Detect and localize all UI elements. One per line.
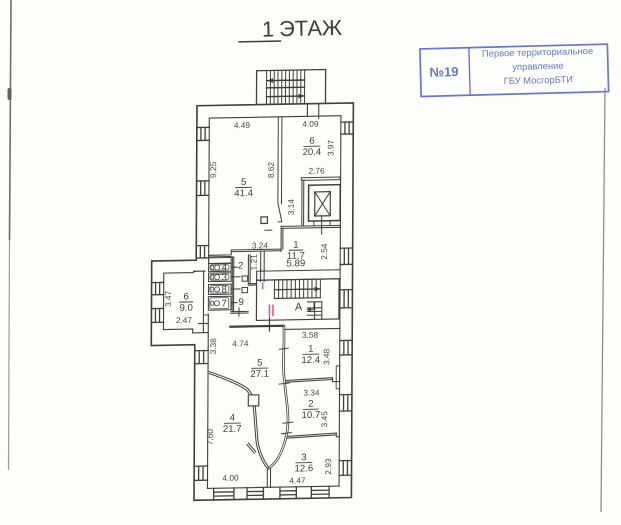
svg-text:9.0: 9.0: [179, 303, 192, 314]
svg-text:12.6: 12.6: [294, 463, 313, 474]
svg-text:4.49: 4.49: [234, 120, 251, 130]
svg-text:20.4: 20.4: [303, 147, 322, 158]
svg-text:9.25: 9.25: [208, 161, 218, 178]
svg-text:8: 8: [222, 284, 227, 295]
svg-text:5: 5: [257, 358, 262, 369]
svg-text:3.48: 3.48: [321, 348, 331, 365]
svg-text:управление: управление: [512, 60, 564, 72]
svg-text:3.97: 3.97: [326, 139, 336, 156]
svg-text:А: А: [295, 301, 303, 313]
svg-text:4.74: 4.74: [232, 338, 249, 348]
svg-text:5.89: 5.89: [287, 258, 306, 269]
svg-text:№19: №19: [429, 64, 458, 80]
svg-text:6: 6: [184, 291, 189, 302]
svg-text:3.38: 3.38: [208, 338, 218, 355]
svg-text:9: 9: [238, 297, 243, 308]
svg-text:1.21: 1.21: [249, 254, 259, 271]
svg-text:4: 4: [230, 413, 236, 424]
svg-text:Первое территориальное: Первое территориальное: [482, 45, 593, 59]
svg-text:1: 1: [262, 16, 275, 41]
svg-text:21.7: 21.7: [223, 424, 242, 435]
svg-text:12.4: 12.4: [301, 355, 320, 366]
svg-text:4.47: 4.47: [289, 475, 306, 485]
svg-text:3.45: 3.45: [319, 411, 329, 428]
svg-text:2.93: 2.93: [323, 458, 333, 475]
svg-text:3: 3: [222, 272, 227, 283]
svg-text:5: 5: [241, 177, 246, 188]
svg-text:1: 1: [308, 344, 313, 355]
svg-text:2: 2: [238, 260, 243, 271]
svg-text:3.34: 3.34: [303, 387, 320, 397]
svg-text:3.24: 3.24: [252, 240, 269, 250]
svg-text:2.47: 2.47: [176, 315, 193, 325]
svg-text:ЭТАЖ: ЭТАЖ: [279, 15, 342, 41]
svg-text:7: 7: [221, 298, 226, 309]
svg-text:8.62: 8.62: [266, 161, 276, 178]
svg-text:7.60: 7.60: [205, 429, 215, 446]
svg-text:1: 1: [293, 240, 298, 251]
svg-text:3.58: 3.58: [302, 330, 319, 340]
svg-text:3.47: 3.47: [163, 290, 173, 307]
svg-text:27.1: 27.1: [250, 369, 269, 380]
svg-text:3.14: 3.14: [286, 199, 296, 216]
svg-text:4.09: 4.09: [302, 119, 319, 129]
svg-text:2: 2: [308, 399, 313, 410]
svg-text:ГБУ МосгорБТИ: ГБУ МосгорБТИ: [504, 73, 573, 86]
svg-text:41.4: 41.4: [234, 188, 253, 199]
svg-text:4.00: 4.00: [222, 473, 239, 483]
svg-text:2.76: 2.76: [308, 166, 325, 176]
svg-text:6: 6: [309, 136, 314, 147]
svg-text:10.7: 10.7: [302, 410, 321, 421]
svg-text:3: 3: [301, 452, 306, 463]
svg-text:2.54: 2.54: [319, 243, 329, 260]
